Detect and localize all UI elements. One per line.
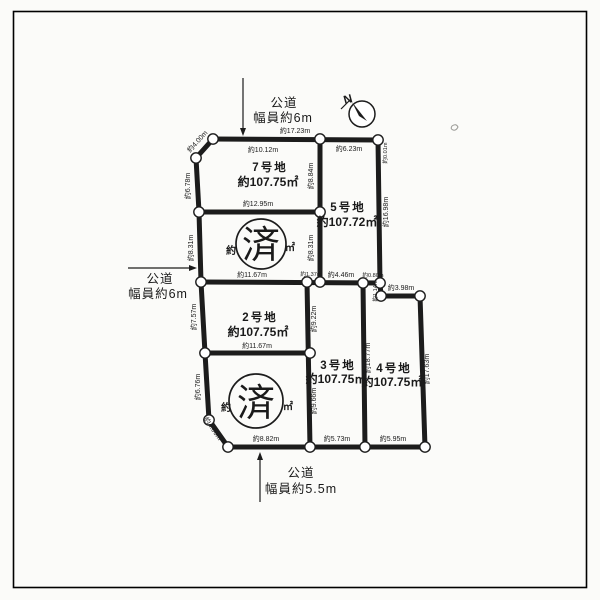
dim-p1-bottom: 約8.82m — [253, 434, 280, 443]
dim-p5-top: 約6.23m — [336, 144, 363, 153]
junction-marker — [373, 135, 383, 145]
junction-marker — [223, 442, 233, 452]
plot2-name: 2号地 — [242, 310, 277, 324]
dim-p6-bottom: 約11.67m — [237, 270, 267, 279]
road-top-width: 幅員約6m — [253, 110, 313, 125]
road-arrowhead-left — [189, 265, 197, 271]
dim-p4-bottom: 約5.95m — [380, 434, 407, 443]
plot5-name: 5号地 — [330, 200, 365, 214]
land-plot-diagram: 約17.23m 約10.12m 約6.23m 約0.01m 約16.98m 約4… — [0, 0, 600, 600]
boundary-road-level-line — [201, 282, 380, 283]
dim-p7-bottom: 約12.95m — [243, 199, 274, 208]
boundary-right-edge-upper — [378, 140, 380, 283]
dim-p4-right: 約17.63m — [422, 354, 431, 385]
sold-upper-prefix: 約 — [226, 244, 236, 257]
dim-left-lower: 約6.76m — [193, 374, 202, 401]
dim-p4-top: 約3.98m — [388, 283, 415, 292]
dim-seg-0-80: 約0.80m — [362, 271, 383, 279]
scan-artifact — [451, 125, 458, 130]
junction-marker — [420, 442, 430, 452]
dim-notch-vertical: 約1.14m — [371, 280, 379, 301]
dim-left-mid-lower: 約7.57m — [189, 304, 198, 331]
junction-marker — [194, 207, 204, 217]
road-label-bottom: 公道 幅員約5.5m — [257, 452, 337, 502]
junction-marker — [191, 153, 201, 163]
dim-divider-7-5: 約8.84m — [306, 163, 315, 190]
compass-ring — [349, 101, 375, 127]
dim-corner-right-top: 約0.01m — [381, 142, 389, 163]
junction-marker — [305, 348, 315, 358]
junction-marker — [305, 442, 315, 452]
junction-marker — [302, 277, 312, 287]
plot2-area: 約107.75㎡ — [228, 324, 289, 339]
junction-marker — [360, 442, 370, 452]
plat-scan-page: 約17.23m 約10.12m 約6.23m 約0.01m 約16.98m 約4… — [0, 0, 600, 600]
road-bottom-width: 幅員約5.5m — [265, 481, 337, 496]
divider-plot2-plot3 — [307, 282, 310, 447]
junction-marker — [208, 134, 218, 144]
plot4-name: 4号地 — [376, 361, 411, 375]
dim-top-total: 約17.23m — [280, 126, 311, 135]
road-arrowhead-bottom — [257, 452, 263, 460]
dim-p7-top: 約10.12m — [248, 145, 279, 154]
dim-seg-1-37: 約1.37m — [300, 270, 321, 278]
junction-marker — [200, 348, 210, 358]
plot5-area: 約107.72㎡ — [317, 214, 378, 229]
sold-stamp-character: 済 — [242, 225, 280, 267]
plot7-area: 約107.75㎡ — [238, 174, 299, 189]
dim-left-mid-upper: 約8.31m — [186, 235, 195, 262]
sold-lower-suffix: ㎡ — [283, 400, 293, 413]
road-bottom-name: 公道 — [287, 466, 314, 480]
dim-p5-bottom: 約4.46m — [328, 270, 355, 279]
sold-stamp-upper: 約 ㎡ 済 — [226, 219, 295, 269]
dim-divider-2-3: 約9.22m — [309, 306, 318, 333]
road-top-name: 公道 — [270, 96, 297, 110]
junction-marker — [415, 291, 425, 301]
dim-left-upper: 約6.78m — [183, 173, 192, 200]
page-border — [14, 12, 587, 588]
plot3-name: 3号地 — [320, 358, 355, 372]
junction-marker — [315, 277, 325, 287]
road-label-left: 公道 幅員約6m — [128, 265, 197, 301]
compass: N — [341, 91, 375, 127]
dim-p5-right: 約16.98m — [381, 197, 390, 228]
road-left-name: 公道 — [146, 272, 173, 286]
junction-marker — [196, 277, 206, 287]
road-arrowhead-top — [240, 128, 246, 136]
dim-divider-6-5: 約8.31m — [306, 235, 315, 262]
plot4-area: 約107.75㎡ — [362, 374, 423, 389]
dim-p3-bottom: 約5.73m — [324, 434, 351, 443]
plot3-area: 約107.75㎡ — [306, 371, 367, 386]
sold-stamp-lower: 約 ㎡ 済 — [221, 374, 293, 428]
plot7-name: 7号地 — [252, 160, 287, 174]
dim-divider-3-4: 約18.77m — [363, 343, 372, 374]
dim-p2-bottom: 約11.67m — [242, 341, 272, 350]
sold-stamp-character: 済 — [237, 383, 275, 425]
junction-marker — [315, 134, 325, 144]
junction-marker — [358, 278, 368, 288]
boundary-top-edge — [213, 139, 378, 140]
dim-divider-1-3: 約9.66m — [309, 388, 318, 415]
road-left-width: 幅員約6m — [128, 286, 188, 301]
